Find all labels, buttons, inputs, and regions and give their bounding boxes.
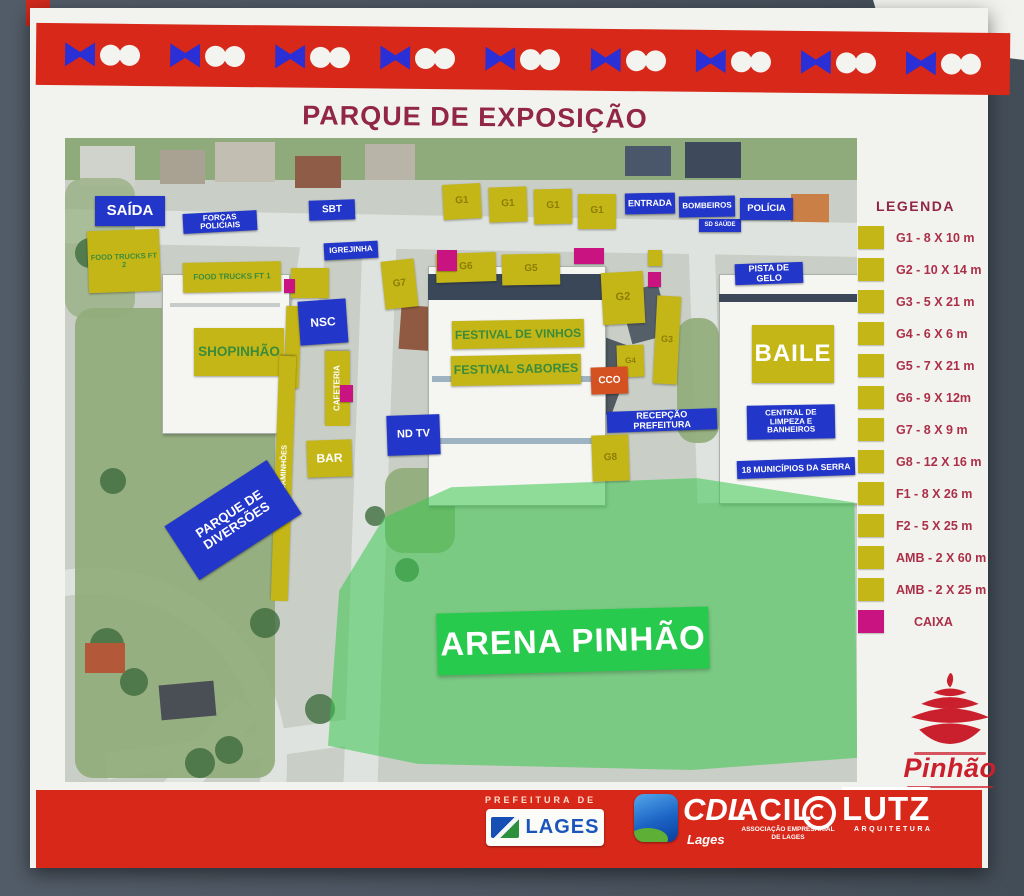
house-block xyxy=(215,142,275,182)
legend-row: F2 - 5 X 25 m xyxy=(858,514,1022,537)
pinhao-festival-logo: Pinhão xyxy=(886,672,1014,788)
legend-swatch xyxy=(858,514,884,537)
arena-banner: ARENA PINHÃO xyxy=(436,606,710,675)
lutz-wordmark: LUTZ xyxy=(842,790,930,828)
lages-flag-icon xyxy=(491,817,519,838)
caixa-square xyxy=(340,385,353,402)
pattern-motif xyxy=(590,48,665,73)
legend-swatch xyxy=(858,418,884,441)
bombeiros-label: BOMBEIROS xyxy=(679,196,735,218)
building-detail xyxy=(719,294,857,302)
legend-swatch xyxy=(858,546,884,569)
legend-row: G6 - 9 X 12m xyxy=(858,386,1022,409)
stall-g1: G1 xyxy=(534,189,573,225)
stall-g1: G1 xyxy=(488,186,527,222)
legend-row: G3 - 5 X 21 m xyxy=(858,290,1022,313)
festive-border-pattern xyxy=(36,23,1011,95)
legend-row: G1 - 8 X 10 m xyxy=(858,226,1022,249)
cdl-subtext: Lages xyxy=(687,832,725,847)
pattern-motif xyxy=(696,49,771,74)
stall-g5: G5 xyxy=(502,253,561,285)
acil-subtext: ASSOCIAÇÃO EMPRESARIAL DE LAGES xyxy=(733,826,843,843)
stall-g1: G1 xyxy=(578,194,616,229)
entrada-label: ENTRADA xyxy=(625,193,675,215)
house-block xyxy=(625,146,671,176)
pinhao-wordmark: Pinhão xyxy=(886,753,1014,784)
legend-swatch xyxy=(858,386,884,409)
caixa-square xyxy=(437,250,457,271)
legend-row: AMB - 2 X 60 m xyxy=(858,546,1022,569)
aerial-map: ARENA PINHÃO G1 G1 G1 G1 G7 G6 G5 G2 G3 … xyxy=(65,138,857,782)
legend: LEGENDA G1 - 8 X 10 m G2 - 10 X 14 m G3 … xyxy=(858,198,1022,642)
pattern-motif xyxy=(170,43,245,68)
pattern-motif xyxy=(65,42,140,67)
legend-row: G5 - 7 X 21 m xyxy=(858,354,1022,377)
food-trucks-ft2-box: FOOD TRUCKS FT 2 xyxy=(87,229,161,293)
forcas-policiais-label: FORÇAS POLICIAIS xyxy=(183,210,258,234)
house-block xyxy=(85,643,125,673)
pattern-motif xyxy=(275,44,350,69)
pattern-motif xyxy=(380,46,455,71)
prefeitura-small-text: PREFEITURA DE xyxy=(485,795,596,805)
pattern-motif xyxy=(906,51,981,76)
legend-swatch xyxy=(858,354,884,377)
festival-sabores-label: FESTIVAL SABORES xyxy=(451,354,582,386)
house-block xyxy=(160,150,205,184)
tree-icon xyxy=(185,748,215,778)
legend-title: LEGENDA xyxy=(876,198,1022,214)
food-trucks-ft1-box: FOOD TRUCKS FT 1 xyxy=(183,261,282,293)
policia-label: POLÍCIA xyxy=(740,198,793,220)
cdl-icon xyxy=(634,794,678,842)
house-block xyxy=(365,144,415,180)
pista-de-gelo-label: PISTA DE GELO xyxy=(735,262,804,285)
stall-g2: G2 xyxy=(601,271,646,325)
stall-g8: G8 xyxy=(591,434,630,481)
stall-g3: G3 xyxy=(653,295,682,384)
house-block xyxy=(685,142,741,178)
stall-box xyxy=(648,250,662,266)
tree-icon xyxy=(250,608,280,638)
pattern-motif xyxy=(801,50,876,75)
building-detail xyxy=(432,438,600,444)
central-limpeza-label: CENTRAL DE LIMPEZA E BANHEIROS xyxy=(747,404,836,440)
araucaria-tree-icon xyxy=(898,672,1002,746)
bar-label: BAR xyxy=(306,439,352,478)
acil-circle-icon xyxy=(802,796,836,830)
stall-g1: G1 xyxy=(442,183,482,220)
legend-swatch xyxy=(858,322,884,345)
legend-row: G8 - 12 X 16 m xyxy=(858,450,1022,473)
legend-swatch xyxy=(858,610,884,633)
acil-wordmark: ACIL xyxy=(736,792,812,828)
festival-vinhos-label: FESTIVAL DE VINHOS xyxy=(452,319,584,349)
saida-label: SAÍDA xyxy=(95,196,165,226)
logo-small-text-line xyxy=(914,752,986,755)
sponsor-band: PREFEITURA DE LAGES CDL Lages ACIL ASSOC… xyxy=(36,790,982,868)
legend-swatch xyxy=(858,482,884,505)
legend-swatch xyxy=(858,578,884,601)
house-block xyxy=(791,194,829,224)
tree-icon xyxy=(100,468,126,494)
legend-row: F1 - 8 X 26 m xyxy=(858,482,1022,505)
logo-small-text-line xyxy=(907,786,993,788)
caixa-square xyxy=(574,248,604,264)
legend-row: G7 - 8 X 9 m xyxy=(858,418,1022,441)
legend-row: CAIXA xyxy=(858,610,1022,633)
page-title: PARQUE DE EXPOSIÇÃO xyxy=(30,97,920,137)
legend-swatch xyxy=(858,258,884,281)
house-block xyxy=(295,156,341,188)
baile-label: BAILE xyxy=(752,325,834,383)
legend-row: G4 - 6 X 6 m xyxy=(858,322,1022,345)
sd-saude-label: SD SAÚDE xyxy=(699,219,741,232)
caixa-square xyxy=(284,279,295,293)
caixa-square xyxy=(648,272,661,287)
projected-slide: PARQUE DE EXPOSIÇÃO xyxy=(30,8,988,868)
house-block xyxy=(159,681,217,721)
building-detail xyxy=(170,303,280,307)
cco-label: CCO xyxy=(591,366,629,394)
legend-row: AMB - 2 X 25 m xyxy=(858,578,1022,601)
legend-swatch xyxy=(858,450,884,473)
tree-icon xyxy=(215,736,243,764)
igrejinha-label: IGREJINHA xyxy=(324,241,379,261)
legend-swatch xyxy=(858,290,884,313)
lages-logo: LAGES xyxy=(486,809,604,846)
legend-swatch xyxy=(858,226,884,249)
nsc-label: NSC xyxy=(298,298,349,345)
shopinhao-label: SHOPINHÃO xyxy=(194,328,284,376)
recepcao-prefeitura-label: RECEPÇÃO PREFEITURA xyxy=(607,408,718,433)
nd-tv-label: ND TV xyxy=(386,414,440,456)
pattern-motif xyxy=(485,47,560,72)
sbt-label: SBT xyxy=(309,199,356,221)
lages-wordmark: LAGES xyxy=(526,816,600,839)
lutz-subtext: ARQUITETURA xyxy=(854,826,932,833)
legend-row: G2 - 10 X 14 m xyxy=(858,258,1022,281)
stall-box xyxy=(291,268,329,298)
stall-g7: G7 xyxy=(381,258,419,309)
